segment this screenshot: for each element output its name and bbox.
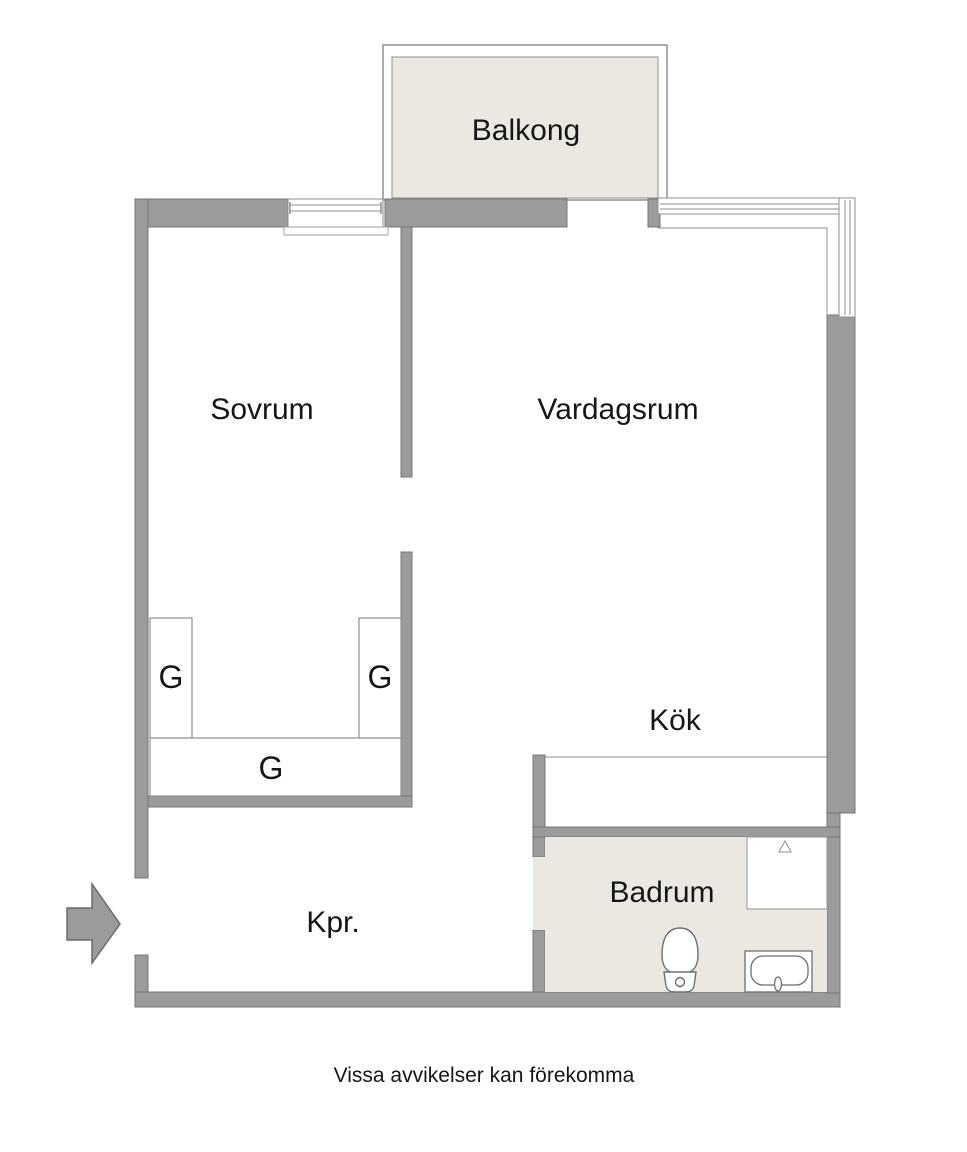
bathroom: Badrum [533, 837, 827, 992]
wall-top-left [135, 199, 288, 227]
closet-label-left: G [159, 659, 184, 695]
balcony: Balkong [383, 45, 667, 200]
wall-divider-upper [401, 227, 412, 477]
bathroom-door-opening [533, 857, 545, 930]
disclaimer-text: Vissa avvikelser kan förekomma [334, 1064, 635, 1087]
room-label-bedroom: Sovrum [210, 393, 313, 426]
wall-bathroom-north [533, 827, 840, 837]
closet-label-right: G [368, 659, 393, 695]
wall-top-balcony-left [385, 199, 567, 227]
room-label-hallway: Kpr. [306, 906, 359, 939]
wall-left-upper [135, 199, 148, 878]
wall-bathroom-west-upper [533, 755, 545, 857]
room-label-kitchen: Kök [649, 704, 702, 737]
toilet-icon [662, 928, 698, 992]
floor-plan-canvas: Balkong [0, 0, 967, 1152]
window-glass-frame [288, 199, 383, 227]
wall-bottom [135, 992, 840, 1007]
floorplan-svg: Balkong [0, 0, 967, 1152]
room-label-living-room: Vardagsrum [537, 393, 698, 426]
toilet-bowl [662, 928, 698, 974]
corner-window-inner-line [658, 228, 827, 315]
toilet-flush-button [676, 978, 685, 987]
wall-bathroom-west-lower [533, 930, 545, 992]
wall-hallway-top [148, 796, 412, 807]
corner-window [658, 198, 855, 317]
wall-right-lower [827, 813, 840, 993]
entry-arrow-icon [67, 884, 120, 963]
washbasin-icon [745, 951, 812, 992]
washbasin-drain [775, 977, 782, 991]
corner-window-vertical [839, 198, 855, 317]
room-label-bathroom: Badrum [609, 876, 714, 909]
room-label-balcony: Balkong [472, 114, 580, 147]
wall-right-upper [827, 315, 855, 813]
bedroom-window [284, 199, 388, 235]
wall-divider-lower [401, 552, 412, 807]
bedroom-window-sill [284, 227, 388, 235]
closets: G G G [150, 618, 401, 796]
closet-label-bottom: G [259, 750, 284, 786]
corner-window-horizontal [658, 198, 855, 214]
